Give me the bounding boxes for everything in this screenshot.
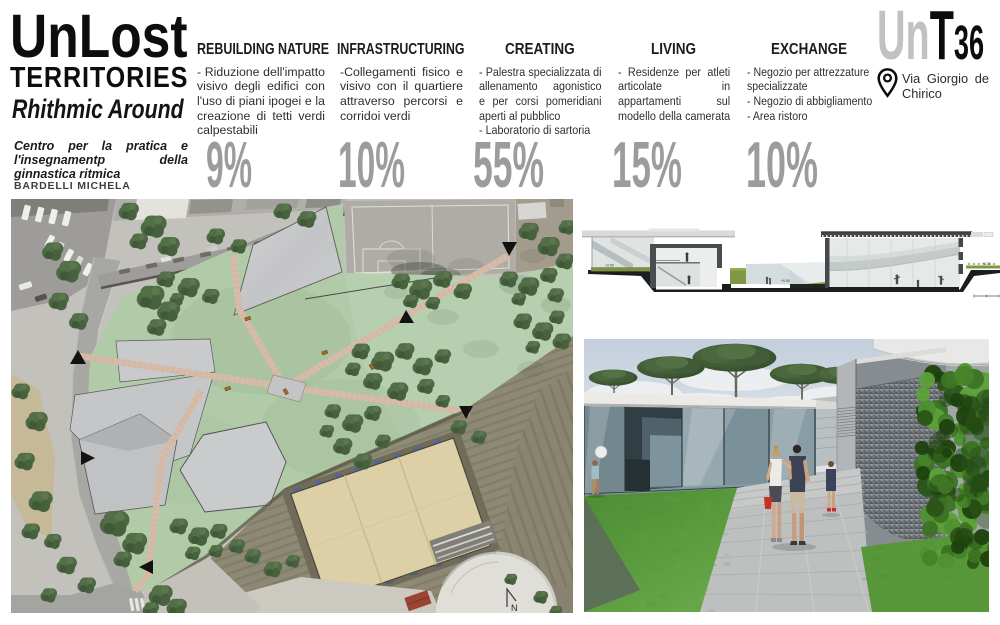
svg-text:+0.00: +0.00 [781, 279, 790, 283]
svg-text:+2.50: +2.50 [605, 264, 614, 268]
svg-text:N: N [511, 603, 518, 613]
svg-text:+4.00: +4.00 [982, 262, 991, 266]
